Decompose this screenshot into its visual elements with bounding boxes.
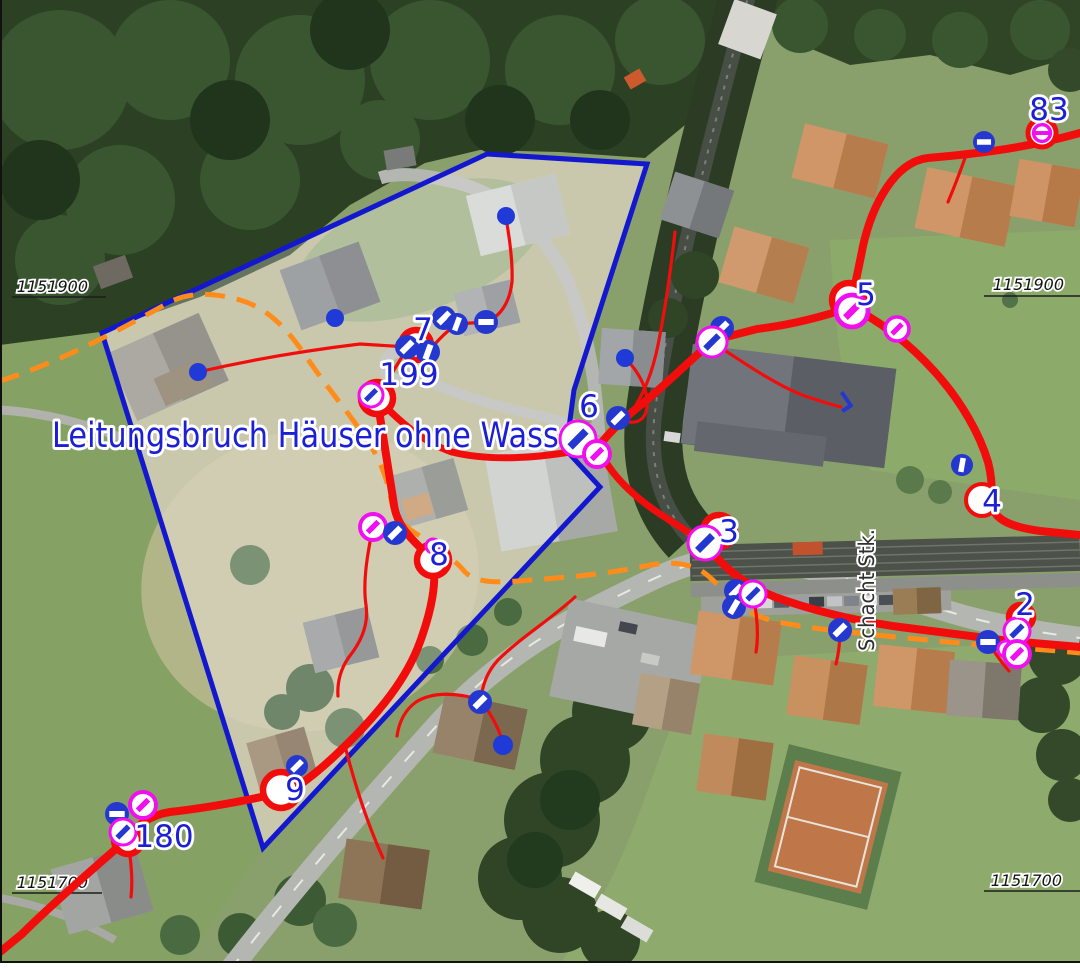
gate-valve-icon[interactable] <box>976 630 1000 654</box>
node-label-3: 3 <box>719 514 739 550</box>
building <box>893 587 942 615</box>
map-canvas[interactable]: Leitungsbruch Häuser ohne Wasser <box>0 0 1080 970</box>
building <box>786 655 868 725</box>
grid-label: 1151900 <box>17 277 88 296</box>
node-label-199: 199 <box>379 357 438 393</box>
map-viewport[interactable]: Leitungsbruch Häuser ohne Wasser <box>0 0 1080 970</box>
building <box>873 644 955 714</box>
building <box>696 733 773 800</box>
building <box>338 838 430 909</box>
grid-label: 1151900 <box>993 275 1064 294</box>
node-label-6: 6 <box>579 389 599 425</box>
map-annotation: Leitungsbruch Häuser ohne Wasser <box>52 416 591 456</box>
node-label-5: 5 <box>856 277 876 313</box>
building <box>632 673 700 735</box>
node-label-180: 180 <box>134 819 193 855</box>
node-label-83: 83 <box>1029 92 1068 128</box>
building <box>946 660 1022 721</box>
node-label-2: 2 <box>1015 587 1035 623</box>
node-label-9: 9 <box>285 772 305 808</box>
node-label-8: 8 <box>429 537 449 573</box>
gate-valve-icon[interactable] <box>973 131 995 153</box>
grid-label: 1151700 <box>991 871 1062 890</box>
street-label: Schacht Stk. <box>855 529 879 651</box>
building <box>1009 159 1080 228</box>
node-label-7: 7 <box>413 312 433 348</box>
node-label-4: 4 <box>982 484 1002 520</box>
gate-valve-icon[interactable] <box>474 310 498 334</box>
